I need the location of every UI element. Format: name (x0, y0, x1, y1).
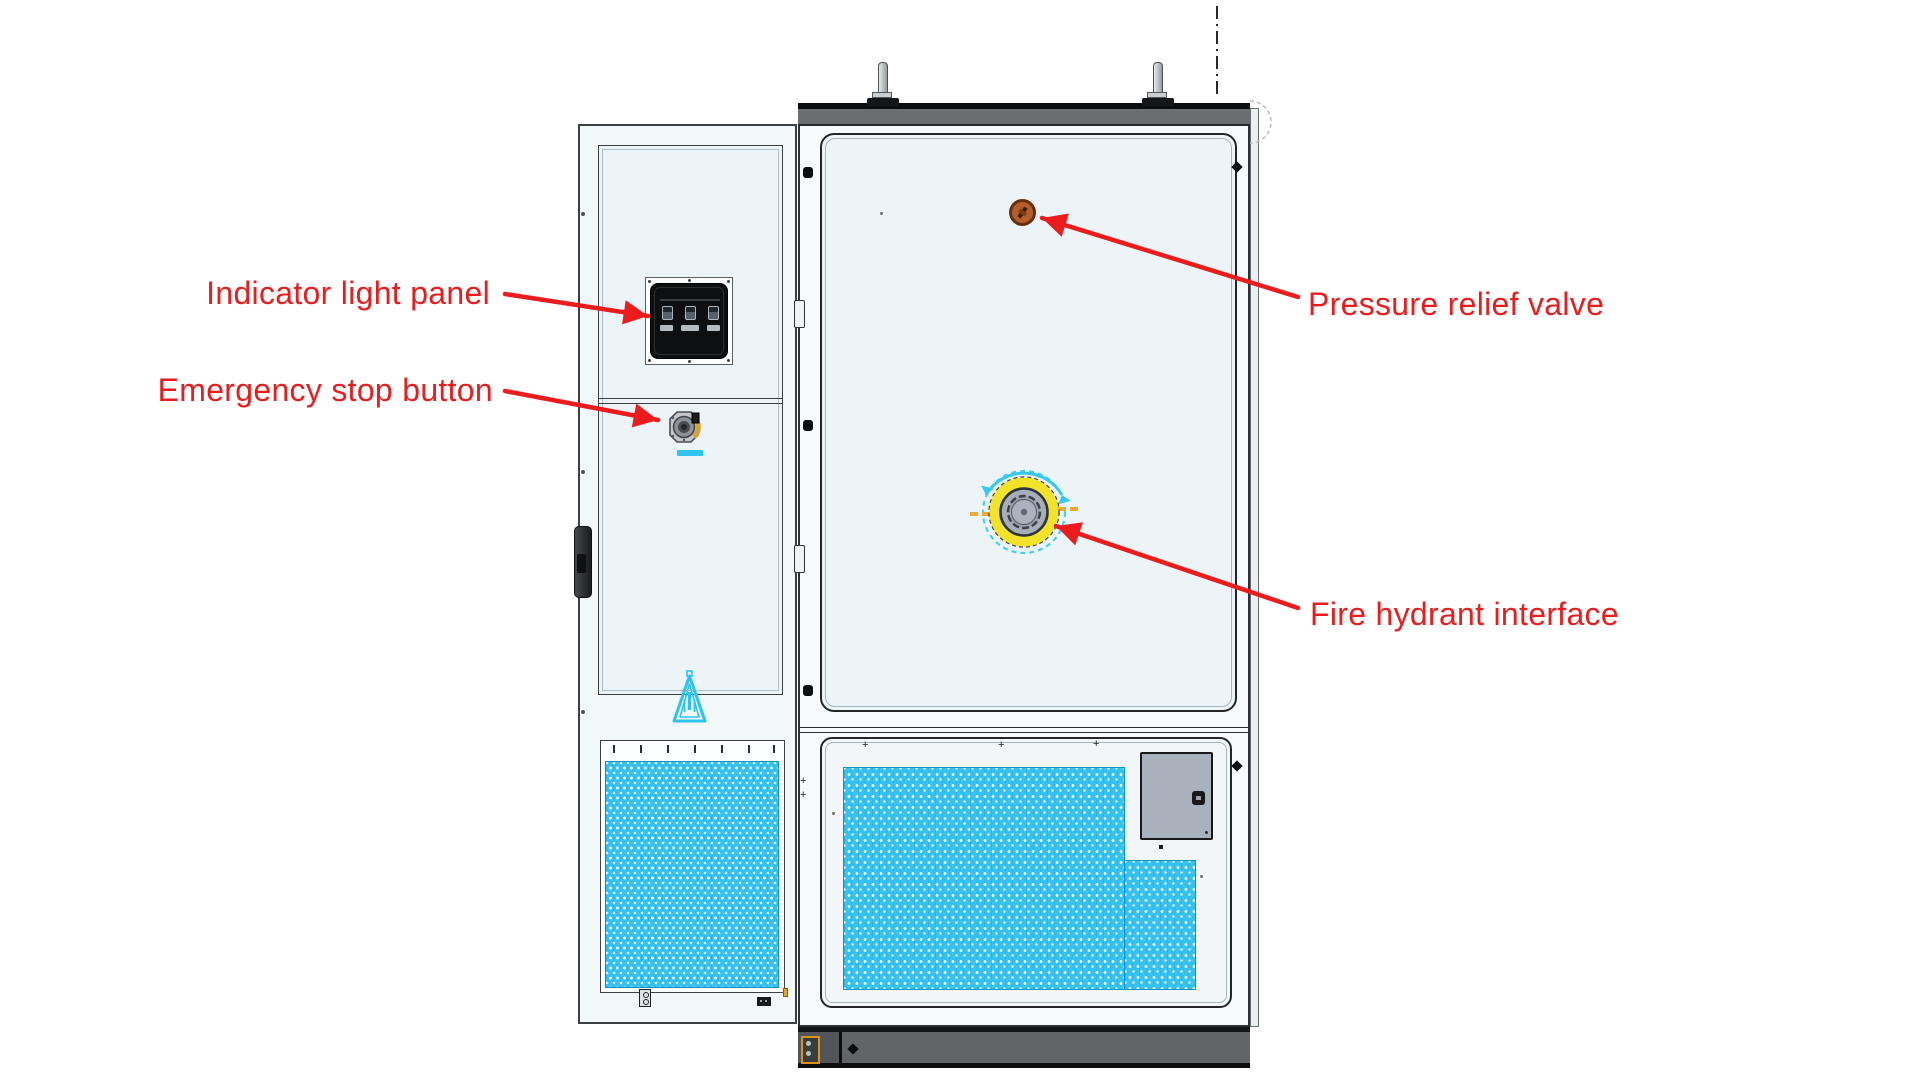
label-indicator-light-panel: Indicator light panel (206, 277, 490, 311)
handle-notch (577, 554, 586, 573)
door-speck (880, 212, 883, 215)
grounding-terminal (801, 1036, 820, 1064)
pressure-relief-valve (1007, 197, 1038, 228)
base-left-cell (798, 1032, 842, 1063)
fire-hydrant-interface (969, 457, 1079, 567)
indicator-caption (707, 325, 720, 331)
panel-speck (832, 812, 835, 815)
bottom-latch (639, 989, 651, 1007)
frame-screw (581, 212, 585, 216)
left-door-divider (598, 398, 783, 404)
hinge-tab (794, 545, 805, 573)
indicator-panel-bezel (654, 287, 724, 355)
left-vent-grille (605, 761, 779, 988)
alignment-mark: + (800, 776, 806, 787)
panel-speck (1200, 875, 1203, 878)
alignment-mark: + (862, 740, 868, 751)
panel-screw (1159, 845, 1163, 849)
status-indicator-icon (708, 306, 719, 320)
right-cabinet-side-sliver (1250, 108, 1259, 1027)
alignment-mark: + (800, 790, 806, 801)
lifting-bolt-base (867, 98, 899, 106)
indicator-light-panel (650, 283, 728, 359)
right-vent-grille (843, 767, 1125, 990)
right-cabinet-top-bar (798, 103, 1250, 126)
indicator-caption (681, 325, 699, 331)
hinge-dot (803, 420, 813, 431)
base-bolt (847, 1043, 858, 1054)
access-panel-latch (1192, 791, 1205, 805)
estop-marker-bar (677, 450, 703, 456)
status-indicator-icon (685, 306, 696, 320)
right-vent-grille-extension (1125, 860, 1196, 990)
status-indicator-icon (662, 306, 673, 320)
bottom-label-plate (757, 997, 771, 1006)
label-emergency-stop-button: Emergency stop button (158, 374, 493, 408)
label-fire-hydrant-interface: Fire hydrant interface (1310, 598, 1619, 632)
hinge-dot (803, 167, 813, 178)
door-handle (574, 526, 592, 598)
indicator-panel-slot (660, 299, 720, 301)
alignment-mark: + (998, 740, 1004, 751)
warning-triangle-icon (671, 670, 709, 726)
frame-screw (581, 470, 585, 474)
diagram-canvas: + + + + + (0, 0, 1920, 1080)
label-pressure-relief-valve: Pressure relief valve (1308, 288, 1604, 322)
frame-screw (581, 710, 585, 714)
emergency-stop-button (665, 409, 703, 447)
mid-rail (798, 727, 1250, 733)
access-panel (1140, 752, 1213, 840)
hinge-pin (783, 988, 788, 997)
indicator-caption (660, 325, 673, 331)
cabinet-base (798, 1027, 1250, 1068)
hinge-tab (794, 300, 805, 328)
lifting-bolt-base (1142, 98, 1174, 106)
alignment-mark: + (1093, 739, 1099, 750)
hinge-dot (803, 685, 813, 696)
